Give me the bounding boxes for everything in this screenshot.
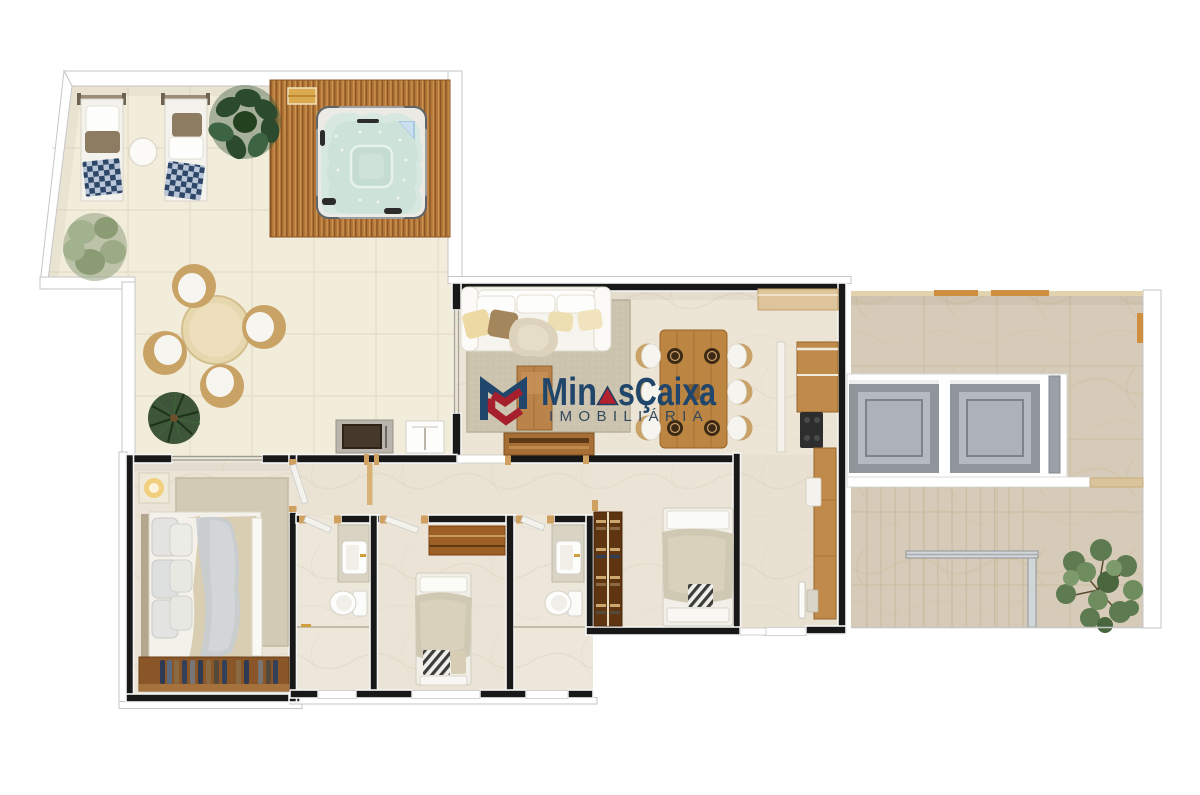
svg-text:Min: Min (541, 371, 597, 414)
svg-text:sÇaixa: sÇaixa (618, 371, 716, 414)
svg-text:IMOBILIÁRIA: IMOBILIÁRIA (549, 408, 709, 425)
